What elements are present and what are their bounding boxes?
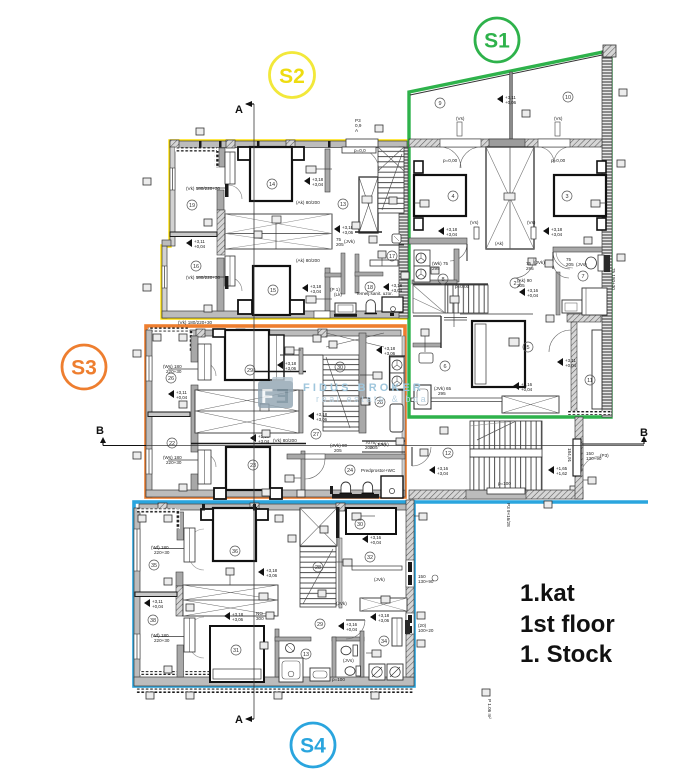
- svg-text:+3,04: +3,04: [310, 289, 322, 294]
- svg-text:(Ak) 80/200: (Ak) 80/200: [296, 200, 320, 205]
- svg-text:+3,04: +3,04: [312, 182, 324, 187]
- svg-text:205: 205: [336, 242, 344, 247]
- svg-text:26: 26: [168, 376, 174, 382]
- svg-text:300: 300: [256, 616, 264, 621]
- svg-text:P3 9×16/28: P3 9×16/28: [506, 503, 511, 527]
- svg-text:27: 27: [313, 432, 319, 438]
- svg-text:295: 295: [438, 391, 446, 396]
- svg-text:130+90: 130+90: [418, 579, 434, 584]
- svg-text:(Vs): (Vs): [456, 116, 465, 121]
- svg-text:1.kat: 1.kat: [520, 580, 575, 607]
- svg-text:+3,06: +3,06: [342, 230, 354, 235]
- svg-text:32: 32: [367, 555, 373, 561]
- svg-text:P 1.06 m²: P 1.06 m²: [487, 699, 492, 719]
- svg-text:+3,06: +3,06: [378, 618, 390, 623]
- svg-text:+3,04: +3,04: [551, 232, 563, 237]
- svg-text:+3,04: +3,04: [258, 439, 270, 444]
- svg-text:205: 205: [566, 262, 574, 267]
- svg-text:(JVk): (JVk): [375, 442, 386, 447]
- svg-text:A: A: [235, 714, 243, 726]
- svg-text:+3,06: +3,06: [316, 417, 328, 422]
- svg-text:+3,06: +3,06: [384, 351, 396, 356]
- svg-text:220+30: 220+30: [166, 369, 182, 374]
- svg-text:(Vk) 80/200: (Vk) 80/200: [273, 438, 297, 443]
- svg-text:+0,04: +0,04: [194, 244, 206, 249]
- svg-text:220+30: 220+30: [154, 550, 170, 555]
- svg-text:29: 29: [247, 368, 253, 374]
- svg-text:30: 30: [337, 365, 343, 371]
- svg-text:13: 13: [340, 202, 346, 208]
- svg-text:p=0,00: p=0,00: [443, 158, 458, 163]
- svg-text:(JVk): (JVk): [534, 260, 545, 265]
- svg-text:205: 205: [334, 448, 342, 453]
- svg-text:12: 12: [445, 451, 451, 457]
- svg-text:6: 6: [443, 364, 446, 370]
- svg-text:Temelj.sanit. uzor.: Temelj.sanit. uzor.: [356, 291, 393, 296]
- svg-text:18: 18: [367, 285, 373, 291]
- svg-text:100+20: 100+20: [418, 628, 434, 633]
- svg-text:4: 4: [451, 194, 454, 200]
- svg-text:7: 7: [581, 274, 584, 280]
- svg-text:S1: S1: [484, 30, 510, 53]
- svg-text:8: 8: [441, 277, 444, 283]
- svg-text:+3,04: +3,04: [437, 471, 449, 476]
- svg-text:(JVk): (JVk): [336, 601, 347, 606]
- svg-text:real estate & boa: real estate & boa: [316, 394, 428, 404]
- svg-text:S2: S2: [279, 65, 305, 88]
- svg-text:FIDUS BROKER: FIDUS BROKER: [303, 382, 424, 394]
- svg-text:34: 34: [381, 639, 387, 645]
- svg-text:220+30: 220+30: [154, 638, 170, 643]
- svg-text:220+30: 220+30: [166, 460, 182, 465]
- svg-text:(JVs): (JVs): [576, 262, 587, 267]
- svg-text:23: 23: [250, 463, 256, 469]
- svg-text:+0,06: +0,06: [505, 100, 517, 105]
- svg-text:30: 30: [357, 522, 363, 528]
- svg-text:19: 19: [189, 203, 195, 209]
- svg-text:p=100: p=100: [332, 677, 345, 682]
- svg-text:9: 9: [438, 101, 441, 107]
- svg-text:+3,06: +3,06: [232, 617, 244, 622]
- svg-text:184,91: 184,91: [567, 448, 572, 462]
- svg-text:31: 31: [233, 648, 239, 654]
- svg-text:(JVk): (JVk): [374, 577, 385, 582]
- svg-text:(Ak) 80/200: (Ak) 80/200: [296, 258, 320, 263]
- svg-text:+3,04: +3,04: [391, 288, 403, 293]
- svg-text:p=100: p=100: [498, 481, 511, 486]
- svg-text:10: 10: [565, 95, 571, 101]
- svg-text:5: 5: [526, 345, 529, 351]
- svg-text:15: 15: [270, 288, 276, 294]
- svg-text:A: A: [235, 104, 243, 116]
- svg-text:14: 14: [269, 182, 275, 188]
- svg-text:13: 13: [303, 652, 309, 658]
- svg-text:(Vs): (Vs): [554, 116, 563, 121]
- svg-text:S3: S3: [71, 357, 97, 380]
- svg-text:1st floor: 1st floor: [520, 611, 615, 638]
- svg-text:205: 205: [517, 283, 525, 288]
- svg-text:17: 17: [389, 254, 395, 260]
- svg-text:p=0,0: p=0,0: [354, 148, 366, 153]
- svg-text:(P 1): (P 1): [330, 287, 340, 292]
- svg-text:(Lk): (Lk): [334, 292, 342, 297]
- svg-text:+0,04: +0,04: [152, 604, 164, 609]
- svg-text:1. Stock: 1. Stock: [520, 641, 613, 668]
- svg-text:+3,06: +3,06: [266, 573, 278, 578]
- svg-text:3: 3: [565, 194, 568, 200]
- svg-text:36: 36: [232, 549, 238, 555]
- svg-text:+0,04: +0,04: [176, 395, 188, 400]
- svg-text:28: 28: [315, 565, 321, 571]
- svg-text:+0,04: +0,04: [527, 293, 539, 298]
- svg-text:(JVs): (JVs): [343, 658, 354, 663]
- svg-text:35: 35: [151, 563, 157, 569]
- svg-text:(Vk) 180/220+30: (Vk) 180/220+30: [178, 320, 213, 325]
- svg-text:S4: S4: [300, 735, 326, 758]
- svg-text:p=0,00: p=0,00: [551, 158, 566, 163]
- svg-text:38: 38: [150, 618, 156, 624]
- svg-text:(Vs): (Vs): [470, 220, 479, 225]
- svg-text:+0,04: +0,04: [521, 387, 533, 392]
- svg-text:F: F: [261, 386, 273, 408]
- svg-text:295: 295: [432, 266, 440, 271]
- svg-text:+3,06: +3,06: [285, 366, 297, 371]
- svg-text:+0,04: +0,04: [565, 363, 577, 368]
- svg-text:16: 16: [193, 264, 199, 270]
- svg-text:+1,62: +1,62: [556, 471, 568, 476]
- svg-text:(JVk): (JVk): [344, 239, 355, 244]
- svg-text:Predprostor+WC: Predprostor+WC: [361, 468, 396, 473]
- svg-text:(Vk) 180/220+30: (Vk) 180/220+30: [186, 275, 221, 280]
- svg-text:75 180+30: 75 180+30: [611, 268, 616, 290]
- svg-text:B: B: [96, 425, 104, 437]
- svg-text:(Vk) 180/220+30: (Vk) 180/220+30: [186, 186, 221, 191]
- svg-text:+3,04: +3,04: [446, 232, 458, 237]
- svg-text:+0,04: +0,04: [346, 627, 358, 632]
- svg-text:11: 11: [587, 378, 593, 384]
- svg-text:(P3): (P3): [600, 453, 609, 458]
- svg-text:(Ak): (Ak): [495, 241, 504, 246]
- svg-text:24: 24: [347, 468, 353, 474]
- svg-text:p=0,00: p=0,00: [455, 284, 470, 289]
- svg-text:+0,04: +0,04: [370, 540, 382, 545]
- svg-text:Ǝ: Ǝ: [276, 386, 289, 408]
- svg-text:(Vs): (Vs): [527, 220, 536, 225]
- svg-text:29: 29: [317, 622, 323, 628]
- svg-text:22: 22: [169, 441, 175, 447]
